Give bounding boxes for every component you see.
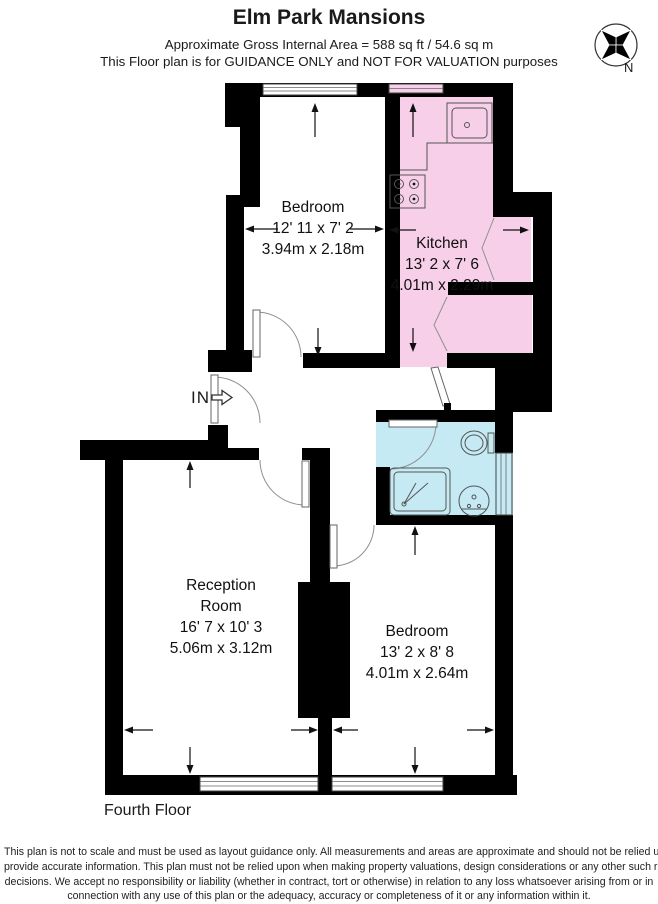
bedroom-top-door: [253, 310, 301, 357]
disclaimer-line: provide accurate information. This plan …: [4, 860, 654, 875]
disclaimer-line: connection with any use of this plan or …: [4, 889, 654, 904]
disclaimer: This plan is not to scale and must be us…: [4, 845, 654, 904]
room-name: Kitchen: [391, 233, 494, 254]
guidance-line: This Floor plan is for GUIDANCE ONLY and…: [100, 54, 558, 69]
kitchen-door: [431, 367, 451, 410]
window: [496, 453, 512, 515]
entrance-label: IN: [191, 388, 210, 408]
room-name: Bedroom: [366, 621, 469, 642]
room-imperial: 12' 11 x 7' 2: [262, 218, 365, 239]
dimension-arrow: [315, 328, 322, 356]
bedroom-bottom-label: Bedroom 13' 2 x 8' 8 4.01m x 2.64m: [366, 621, 469, 684]
window: [332, 777, 443, 791]
bedroom-bottom-door: [330, 525, 374, 568]
room-metric: 5.06m x 3.12m: [170, 638, 273, 659]
dimension-arrow: [291, 727, 318, 734]
room-metric: 4.01m x 2.29m: [391, 275, 494, 296]
floorplan-drawing: [0, 0, 658, 900]
reception-label: Reception Room 16' 7 x 10' 3 5.06m x 3.1…: [170, 575, 273, 659]
dimension-arrow: [412, 526, 419, 555]
room-name: Bedroom: [262, 197, 365, 218]
room-name: Reception: [170, 575, 273, 596]
window: [263, 84, 357, 95]
room-imperial: 13' 2 x 8' 8: [366, 642, 469, 663]
dimension-arrow: [467, 727, 494, 734]
dimension-arrow: [412, 747, 419, 774]
disclaimer-line: This plan is not to scale and must be us…: [4, 845, 654, 860]
disclaimer-line: decisions. We accept no responsibility o…: [4, 875, 654, 890]
room-name: Room: [170, 596, 273, 617]
page-title: Elm Park Mansions: [233, 6, 426, 30]
dimension-arrow: [124, 727, 153, 734]
dimension-arrow: [312, 103, 319, 137]
room-imperial: 13' 2 x 7' 6: [391, 254, 494, 275]
floor-name-label: Fourth Floor: [104, 802, 191, 820]
room-imperial: 16' 7 x 10' 3: [170, 617, 273, 638]
area-line: Approximate Gross Internal Area = 588 sq…: [165, 37, 494, 52]
kitchen-cupboard-floor: [448, 295, 532, 355]
room-metric: 4.01m x 2.64m: [366, 663, 469, 684]
kitchen-label: Kitchen 13' 2 x 7' 6 4.01m x 2.29m: [391, 233, 494, 296]
window: [200, 777, 318, 791]
dimension-arrow: [187, 747, 194, 774]
reception-door: [260, 460, 309, 507]
bedroom-top-label: Bedroom 12' 11 x 7' 2 3.94m x 2.18m: [262, 197, 365, 260]
window: [389, 84, 443, 93]
compass-north-label: N: [624, 60, 633, 75]
dimension-arrow: [333, 727, 358, 734]
dimension-arrow: [187, 461, 194, 488]
room-metric: 3.94m x 2.18m: [262, 239, 365, 260]
